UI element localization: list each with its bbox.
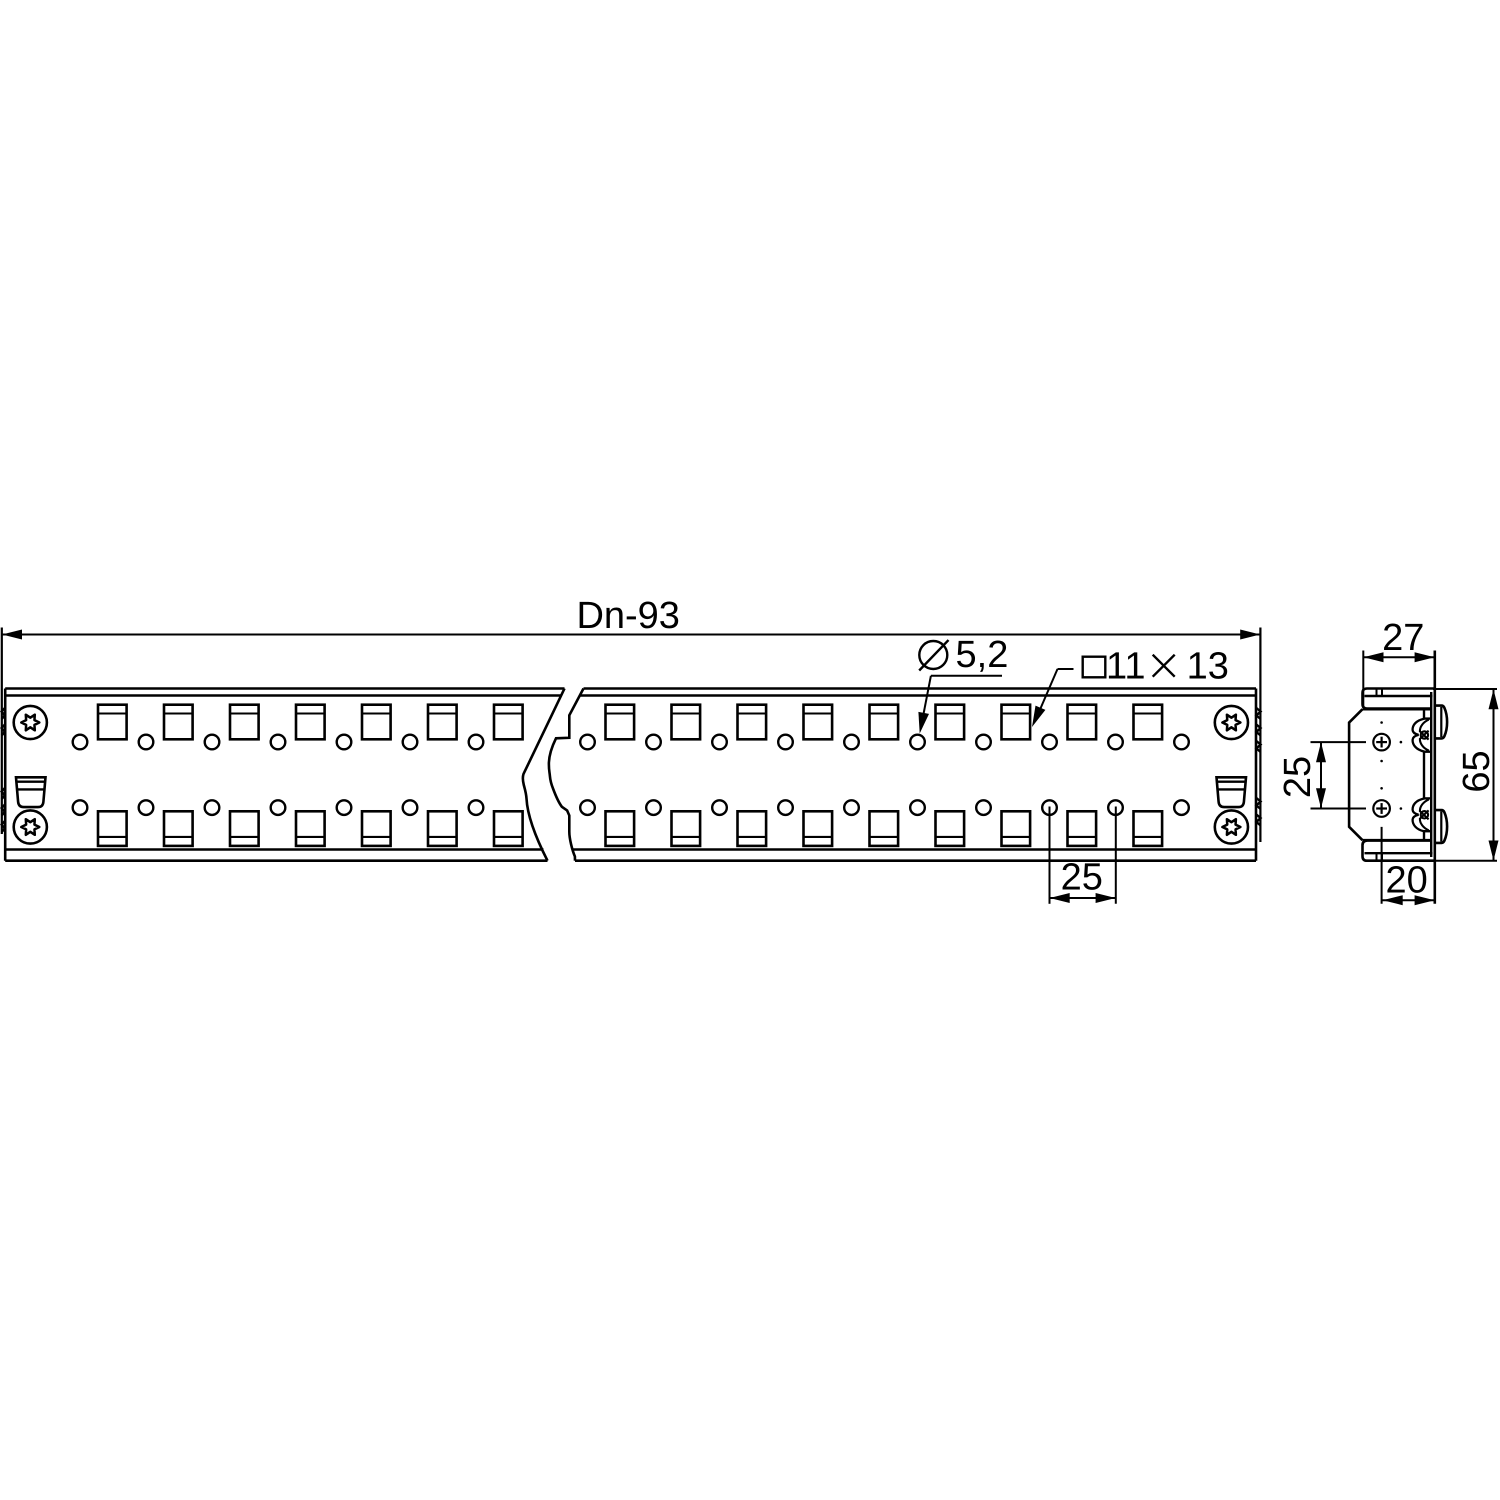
svg-text:27: 27: [1382, 617, 1424, 659]
svg-text:25: 25: [1061, 857, 1103, 899]
svg-text:20: 20: [1386, 860, 1428, 902]
svg-text:5,2: 5,2: [956, 634, 1009, 676]
svg-text:13: 13: [1187, 646, 1229, 688]
svg-text:Dn-93: Dn-93: [576, 595, 680, 637]
svg-text:11: 11: [1106, 646, 1145, 688]
svg-text:65: 65: [1456, 750, 1498, 792]
svg-text:25: 25: [1277, 756, 1319, 798]
